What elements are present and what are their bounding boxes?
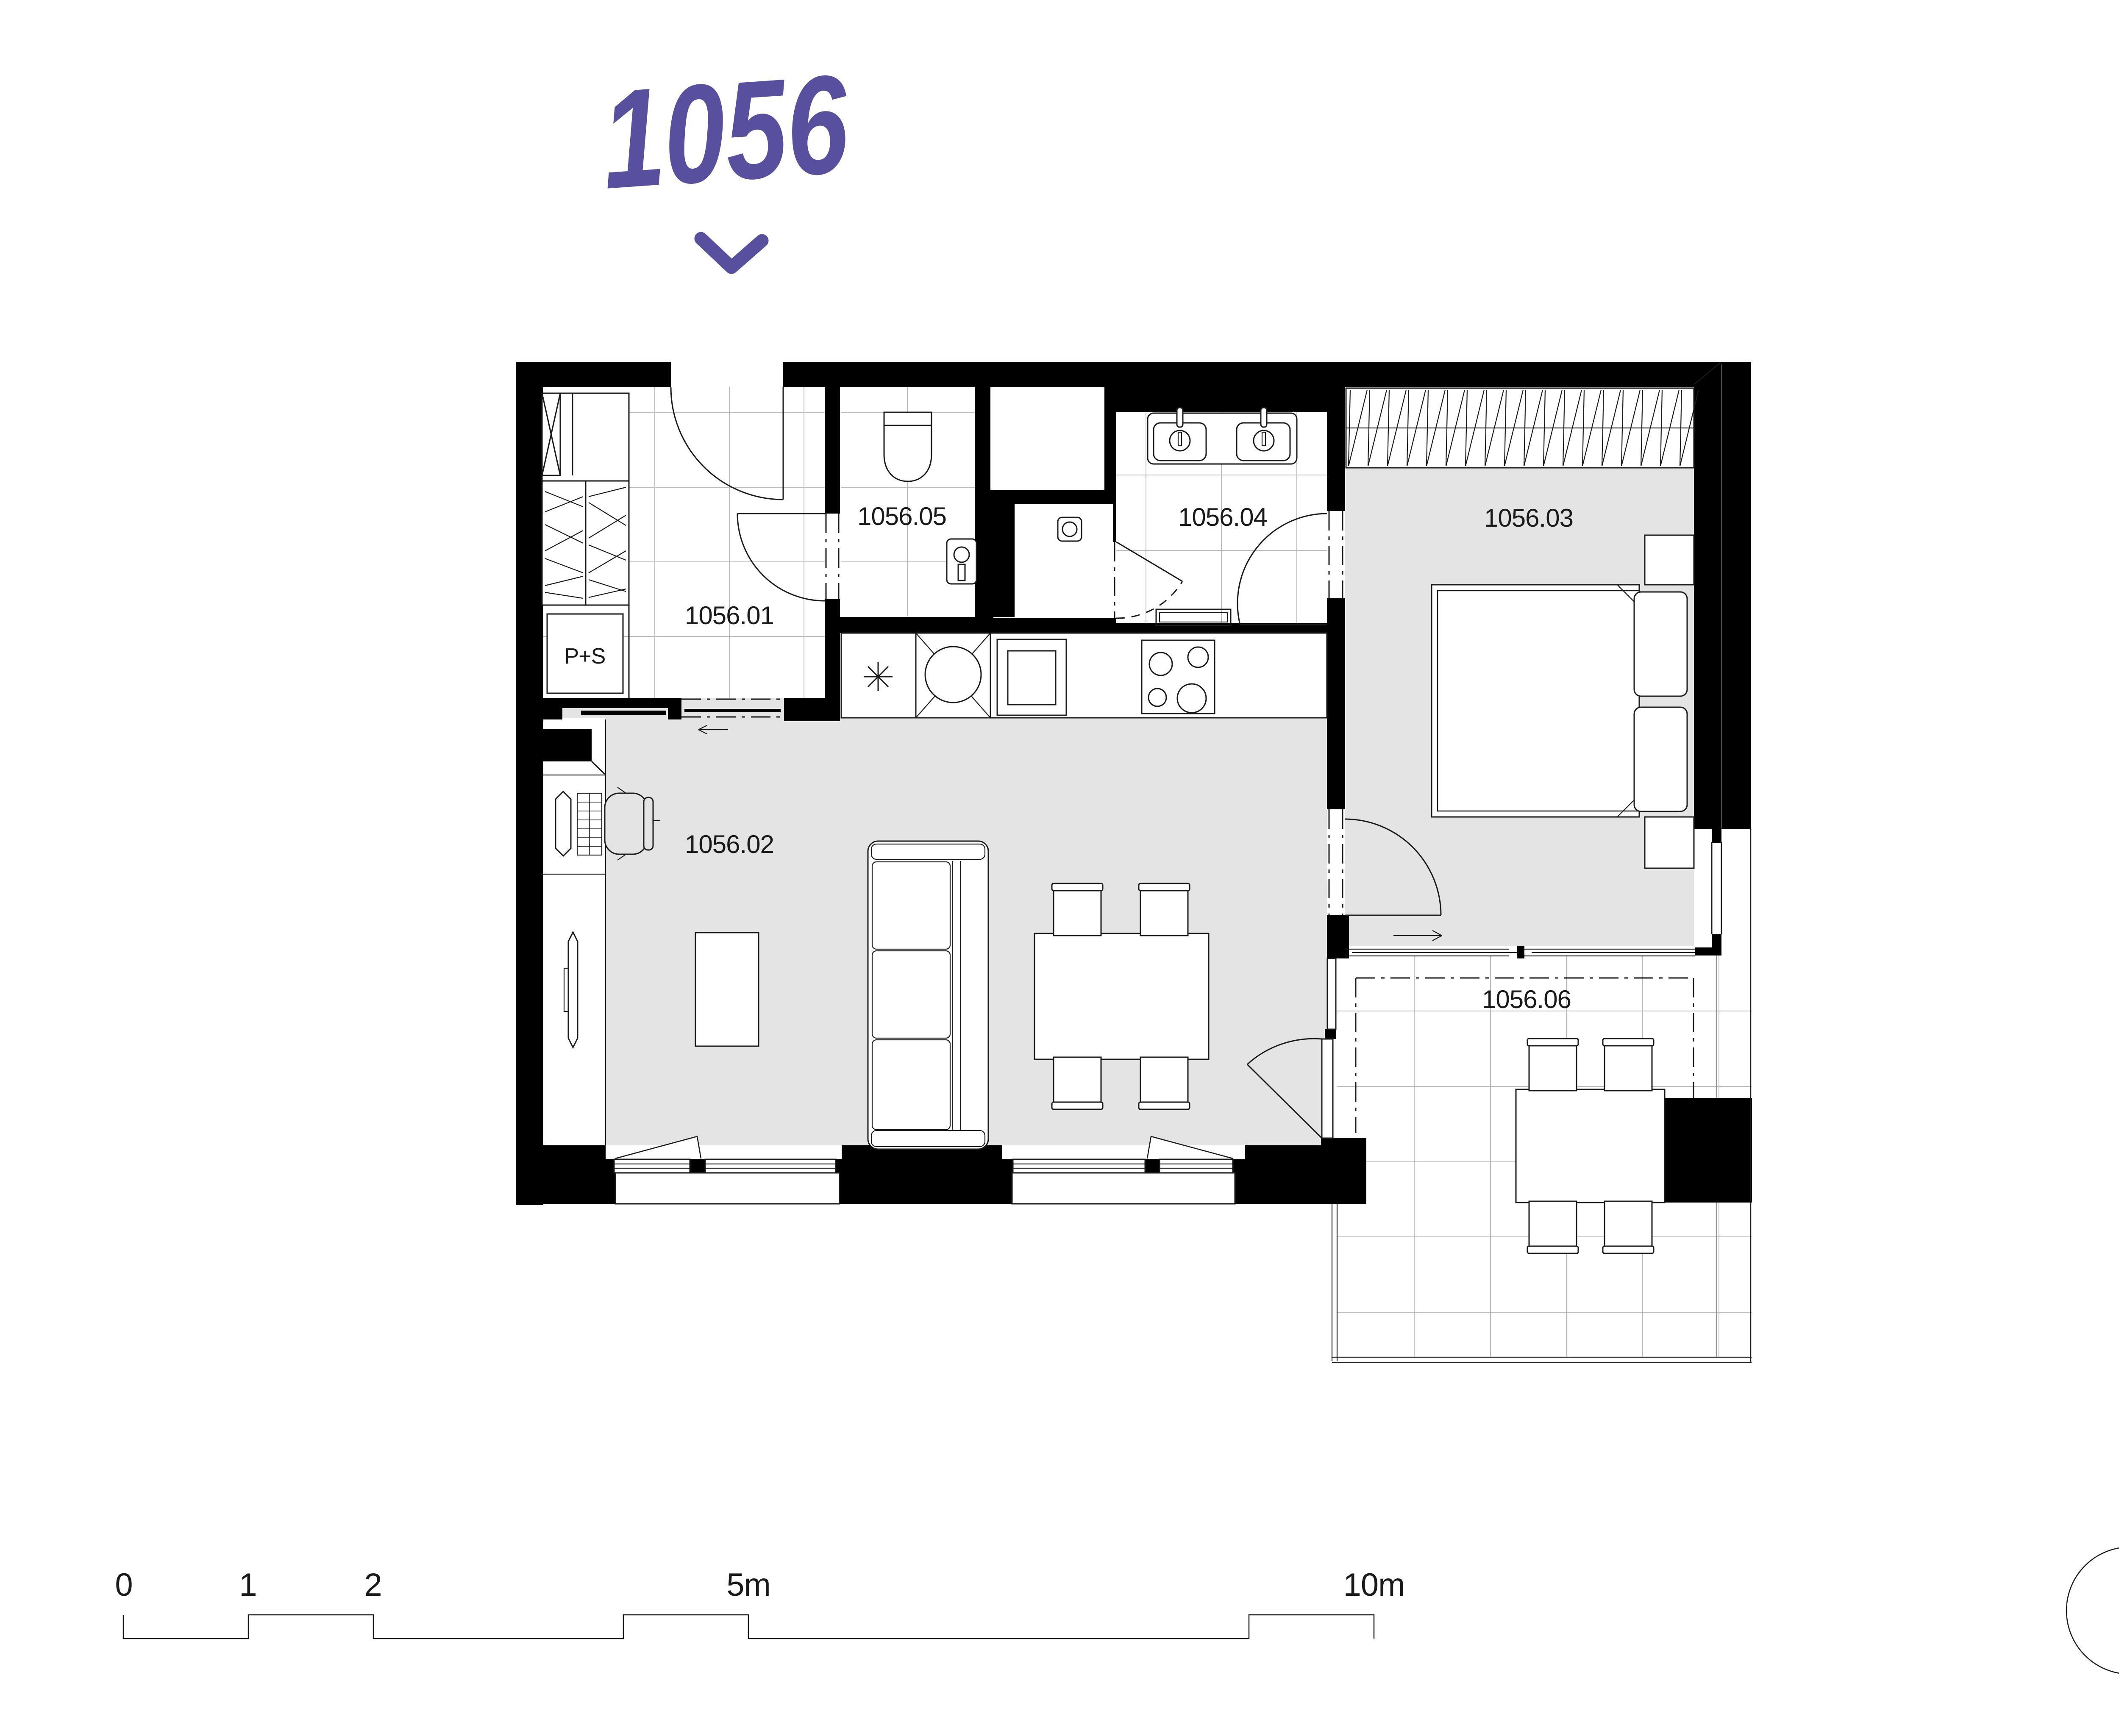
svg-text:1056.05: 1056.05 (857, 502, 946, 531)
svg-text:1056.04: 1056.04 (1178, 503, 1267, 531)
svg-text:1056.01: 1056.01 (685, 601, 774, 630)
svg-text:0: 0 (115, 1567, 132, 1603)
svg-text:1: 1 (239, 1567, 256, 1603)
svg-text:1056.03: 1056.03 (1484, 504, 1573, 532)
svg-text:P+S: P+S (565, 644, 606, 669)
svg-text:10m: 10m (1343, 1567, 1405, 1603)
svg-text:1056: 1056 (597, 45, 854, 218)
svg-text:1056.06: 1056.06 (1482, 985, 1571, 1014)
svg-text:5m: 5m (726, 1567, 770, 1603)
svg-text:1056.02: 1056.02 (685, 830, 774, 858)
svg-text:2: 2 (364, 1567, 381, 1603)
